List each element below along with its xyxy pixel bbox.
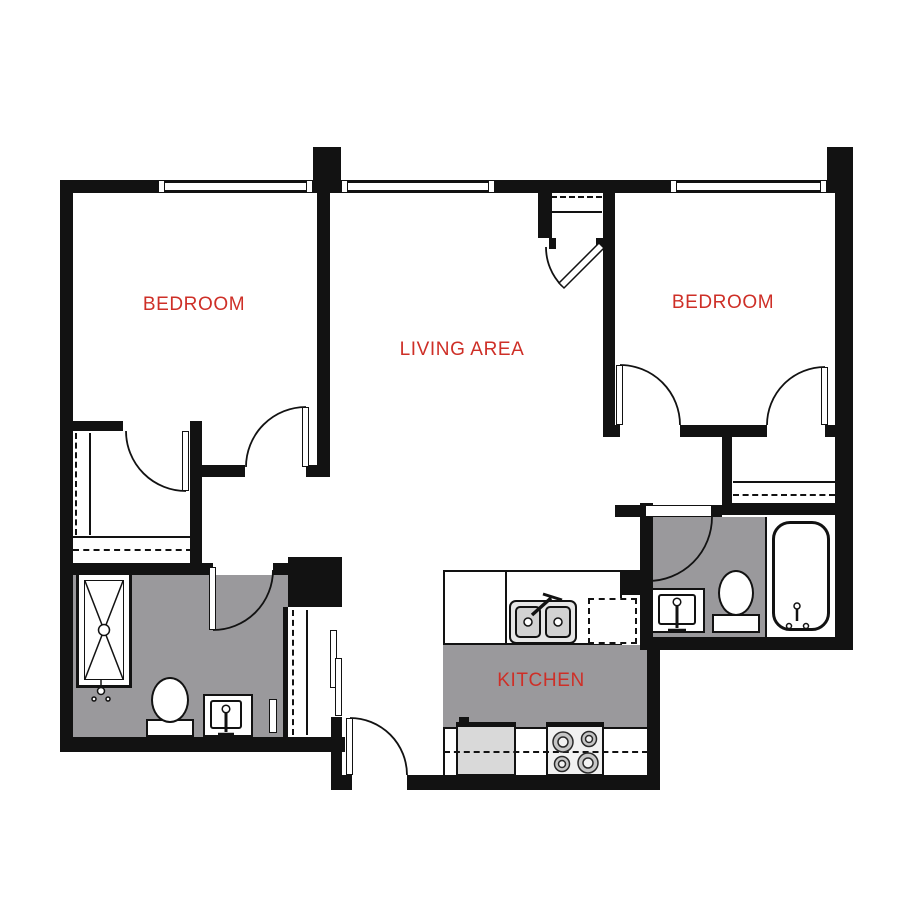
door-arc-bathroom-right bbox=[648, 517, 712, 581]
vanity-right-faucet bbox=[668, 598, 686, 630]
tub-faucet bbox=[787, 603, 809, 629]
stove-burners bbox=[553, 732, 598, 774]
vanity-left-faucet bbox=[218, 705, 234, 734]
door-arc-living-entry bbox=[350, 718, 407, 775]
floor-plan: BEDROOM LIVING AREA BEDROOM KITCHEN bbox=[0, 0, 900, 900]
door-arc-bathroom-left bbox=[213, 570, 273, 630]
door-arc-closet-left bbox=[126, 431, 186, 491]
shower-detail bbox=[85, 581, 123, 701]
door-arc-bedroom-left bbox=[246, 407, 306, 467]
detail-overlay bbox=[0, 0, 900, 900]
room-label-kitchen: KITCHEN bbox=[497, 670, 585, 692]
room-label-living-area: LIVING AREA bbox=[400, 339, 525, 361]
room-label-bedroom-left: BEDROOM bbox=[143, 294, 245, 316]
door-arc-entry-closet bbox=[546, 247, 562, 286]
door-arc-closet-right bbox=[767, 367, 825, 425]
kitchen-faucet bbox=[524, 594, 562, 626]
entry-closet-door-leaf-diagonal bbox=[559, 243, 604, 288]
door-arc-bedroom-right bbox=[620, 365, 680, 425]
room-label-bedroom-right: BEDROOM bbox=[672, 292, 774, 314]
